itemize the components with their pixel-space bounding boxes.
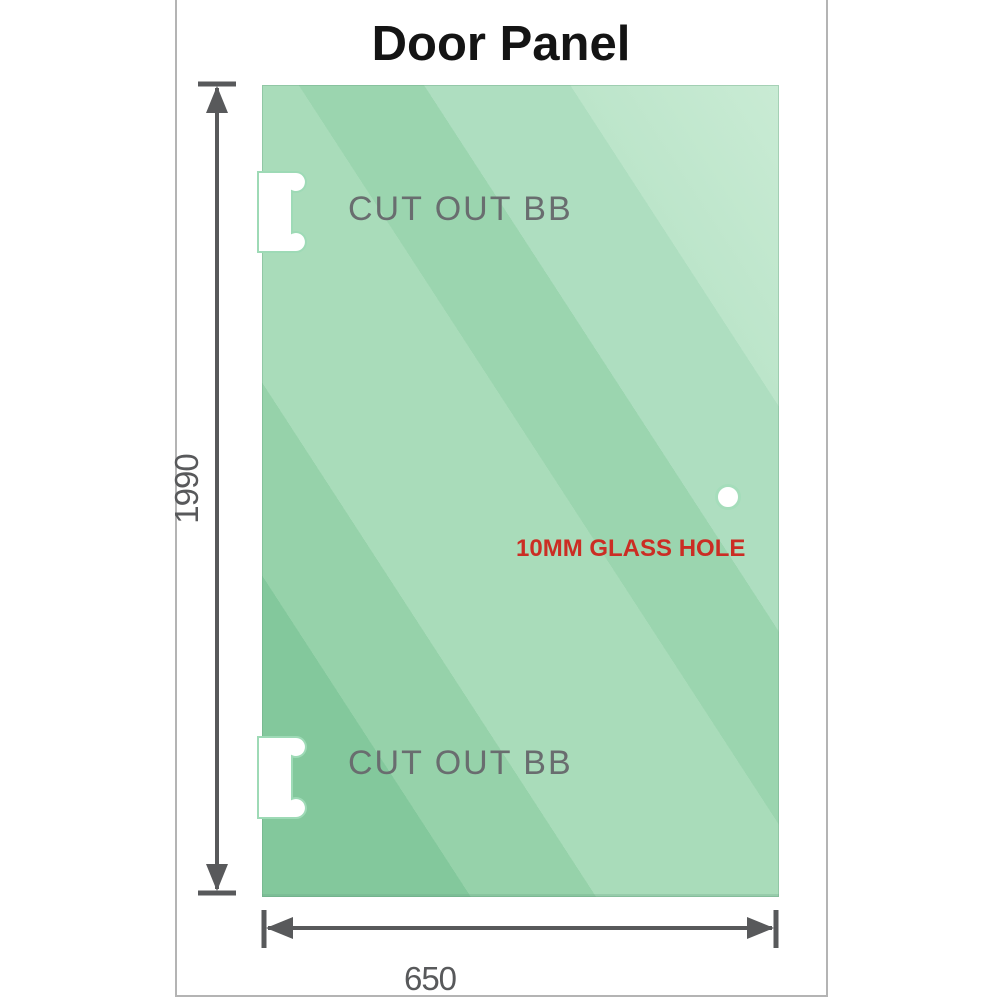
top-cutout-label: CUT OUT BB bbox=[348, 191, 608, 227]
glass-hole bbox=[717, 486, 740, 509]
dimension-overlay bbox=[0, 0, 1000, 1000]
width-dimension-arrow bbox=[264, 910, 776, 948]
bottom-cutout-label: CUT OUT BB bbox=[348, 745, 608, 781]
top-cutout-shape bbox=[258, 172, 306, 252]
glass-hole-label: 10MM GLASS HOLE bbox=[516, 536, 746, 562]
bottom-cutout-shape bbox=[258, 737, 306, 818]
product-diagram-image: Door Panel CUT OUT BB CUT OUT BB 10MM GL… bbox=[0, 0, 1000, 1000]
height-dimension-value: 1990 bbox=[167, 429, 207, 549]
width-dimension-value: 650 bbox=[380, 960, 480, 998]
